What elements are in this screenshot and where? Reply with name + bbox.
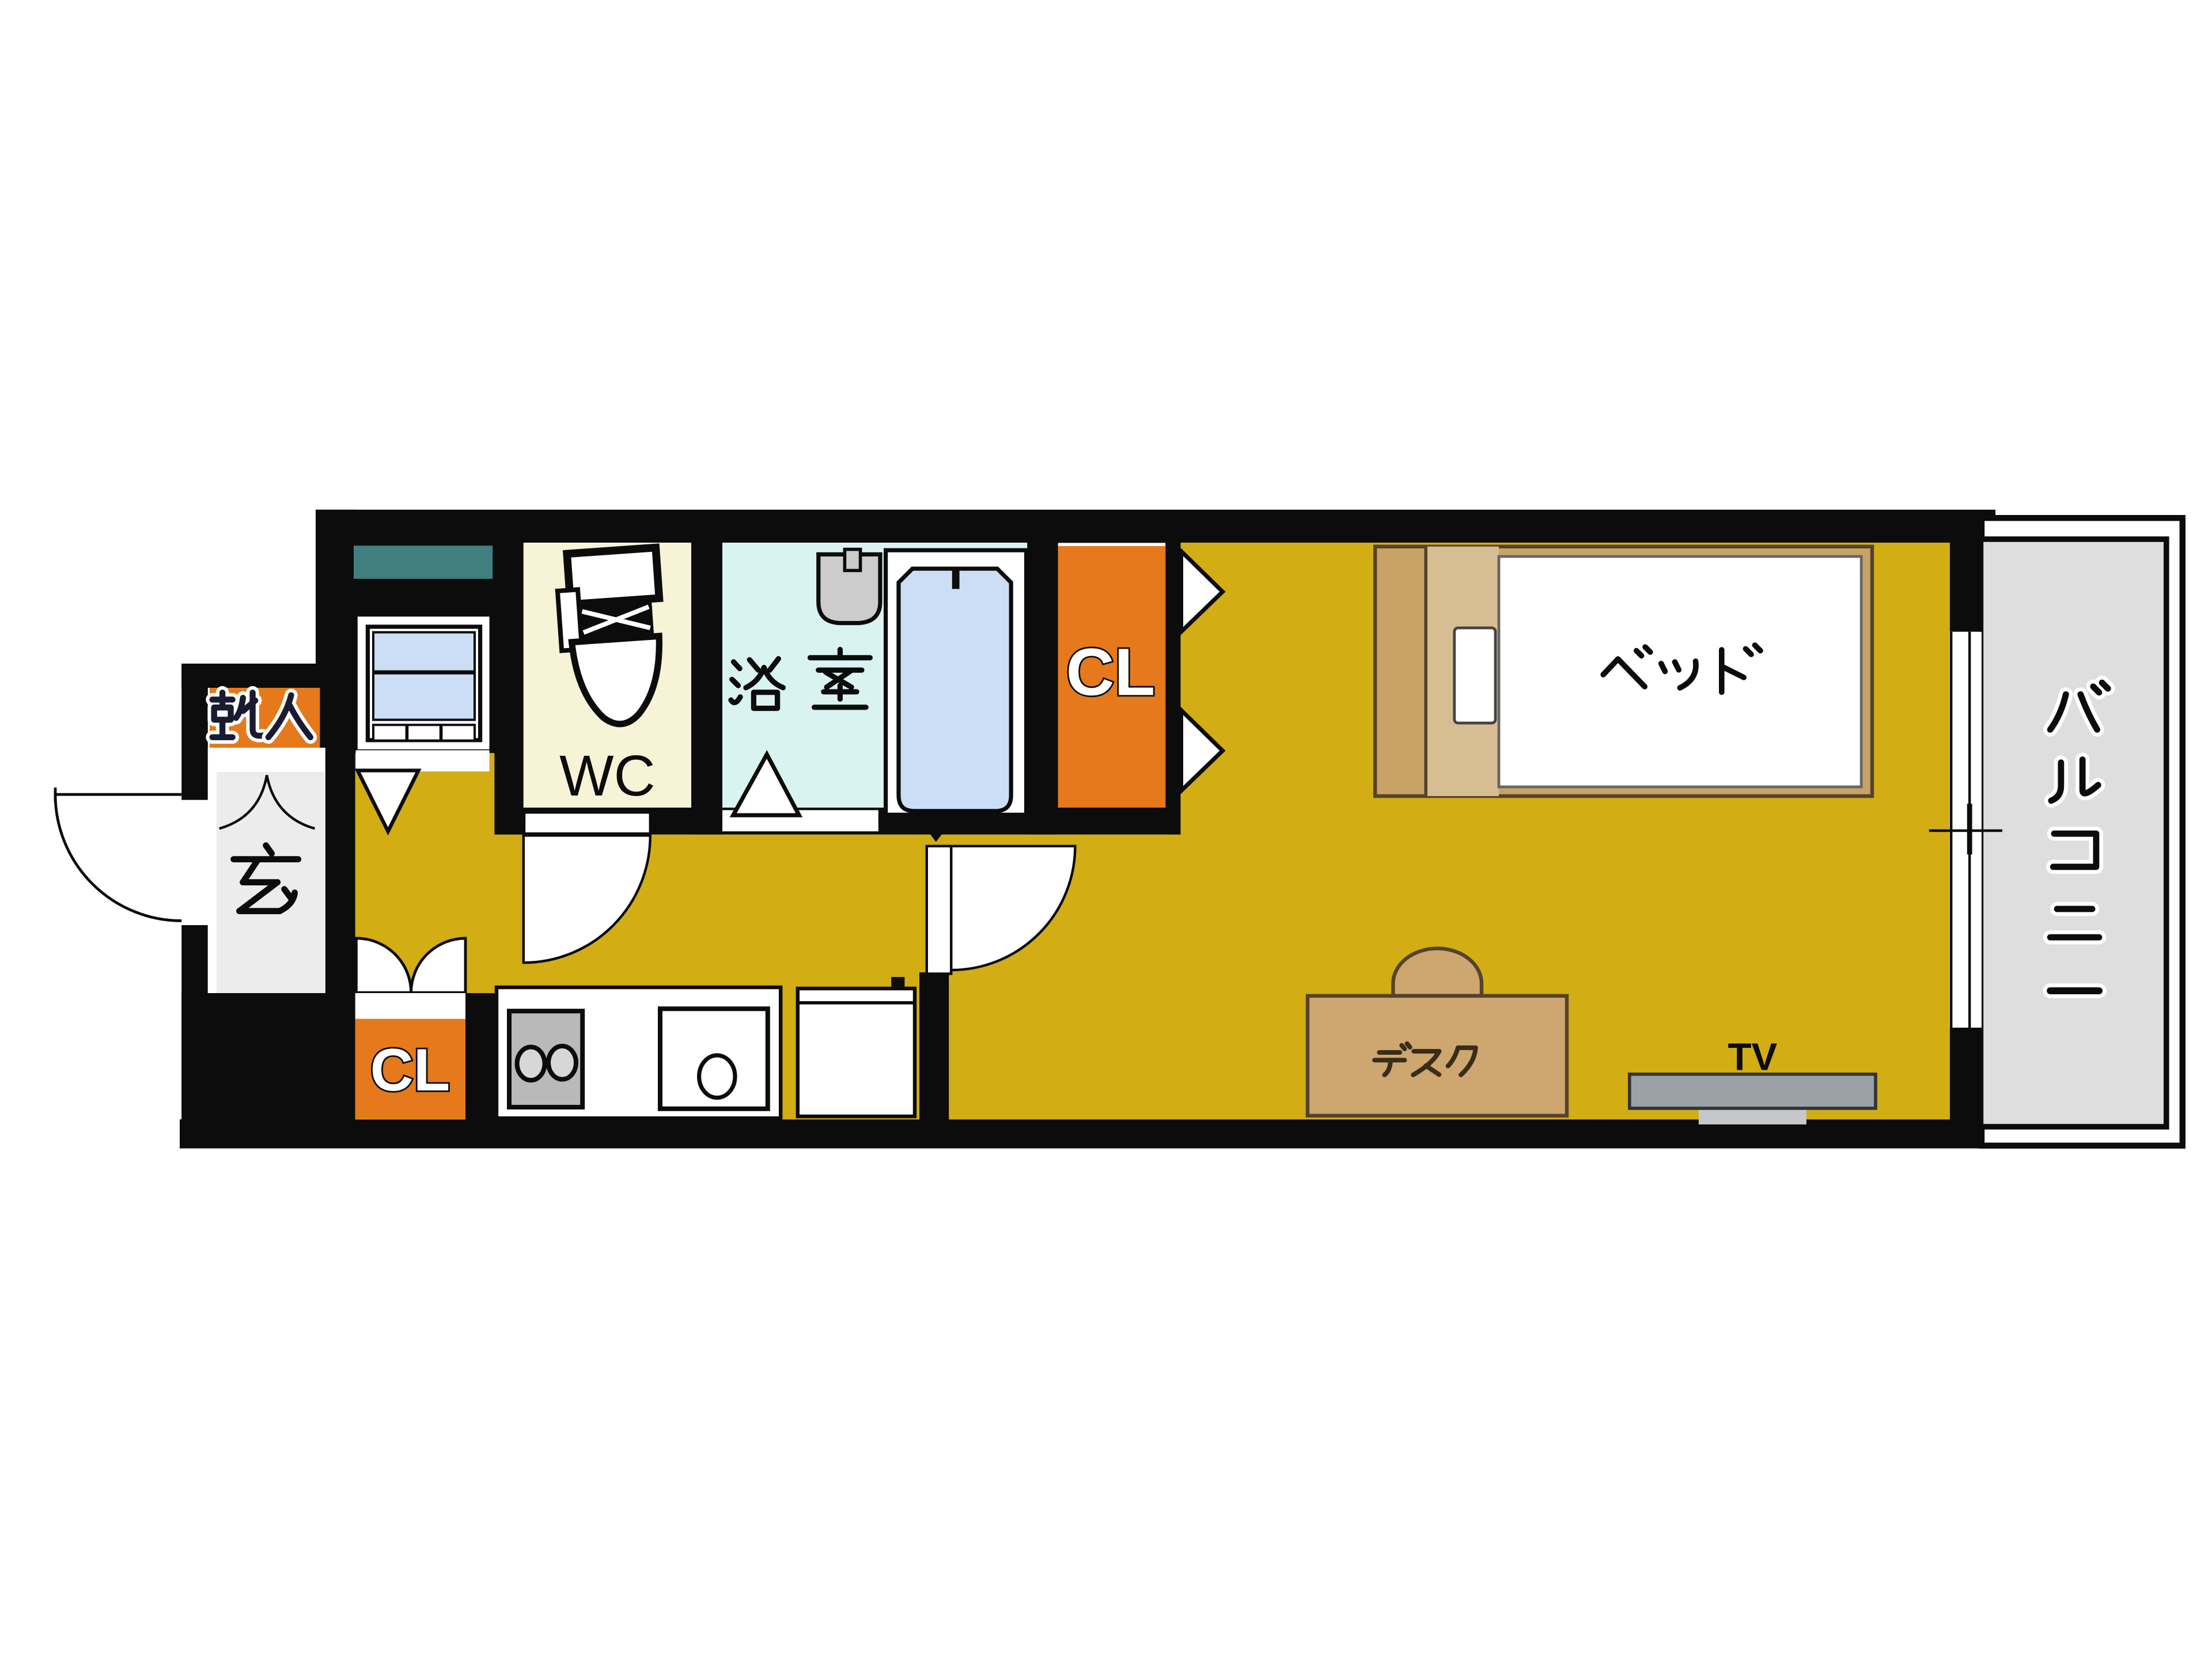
- svg-text:TV: TV: [1728, 1036, 1777, 1079]
- svg-text:CL: CL: [1066, 634, 1156, 709]
- svg-text:WC: WC: [559, 744, 656, 808]
- svg-text:CL: CL: [370, 1037, 450, 1104]
